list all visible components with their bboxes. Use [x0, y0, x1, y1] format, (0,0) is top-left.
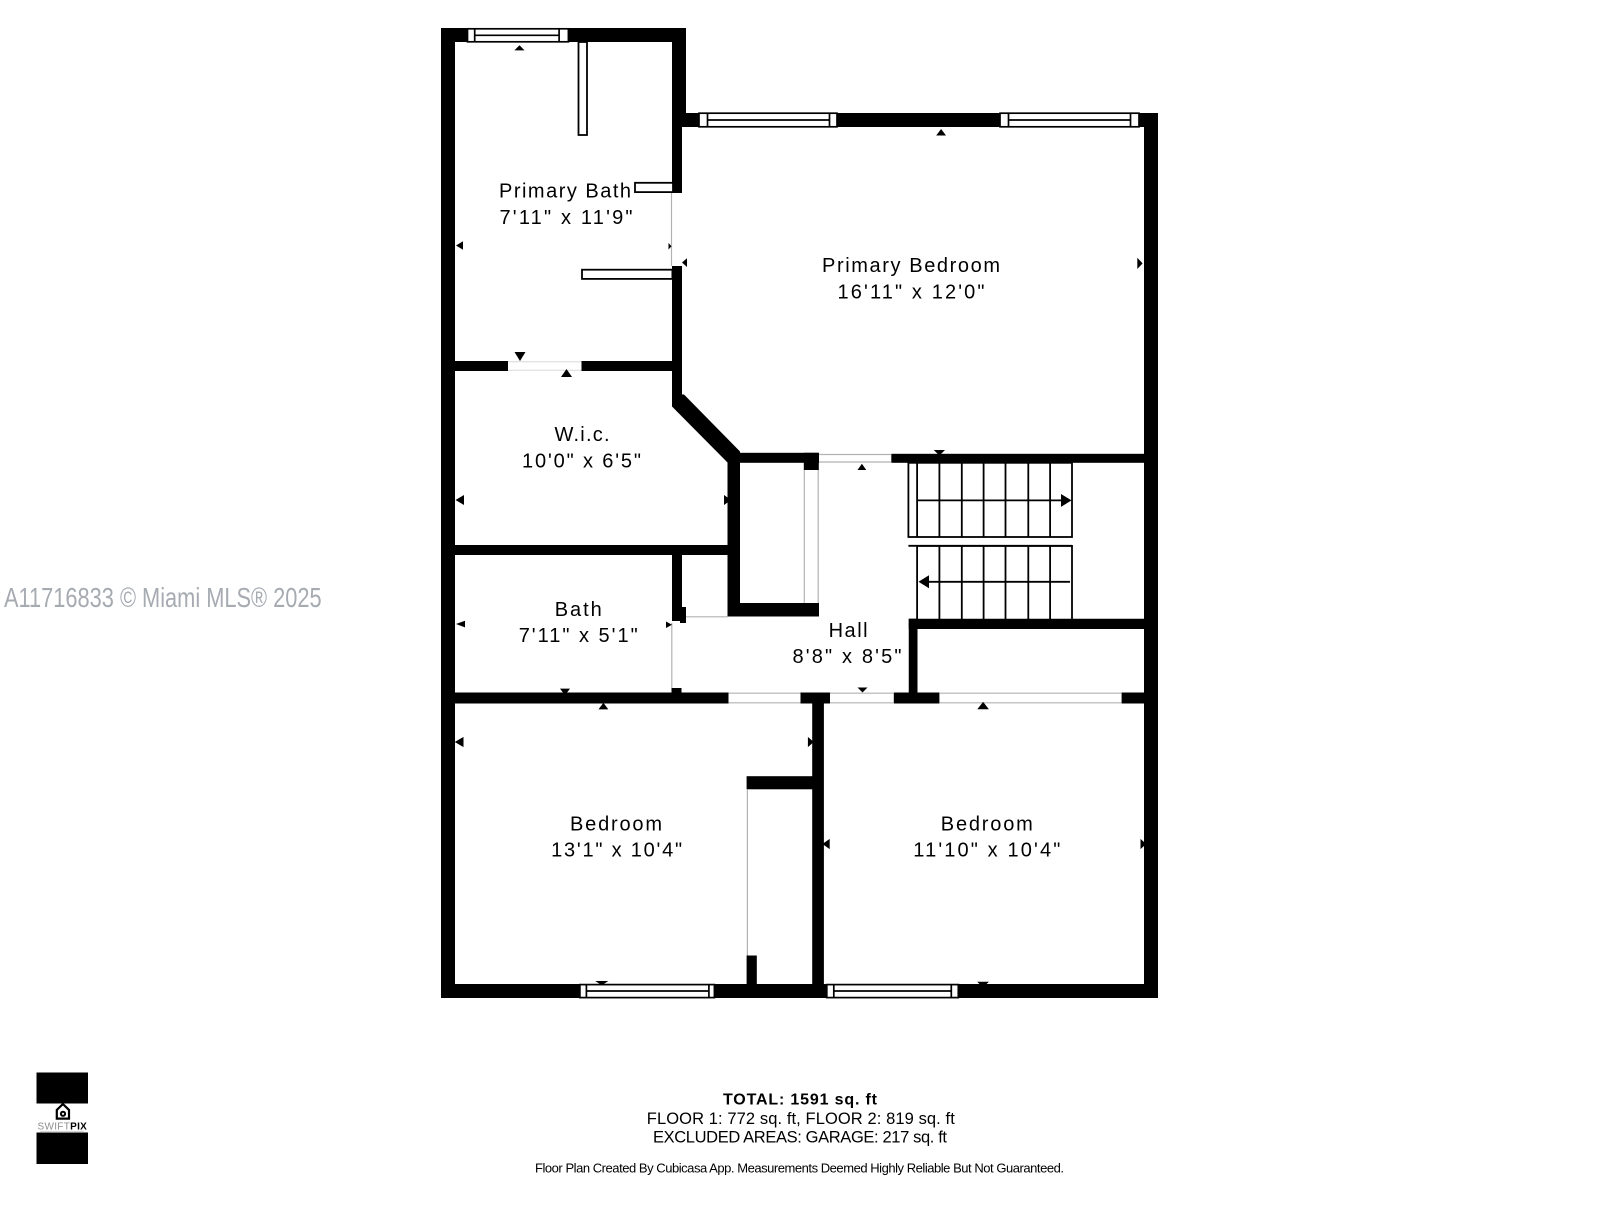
svg-text:W.i.c.: W.i.c. [555, 424, 610, 446]
svg-text:A11716833 © Miami MLS® 2025: A11716833 © Miami MLS® 2025 [4, 582, 322, 613]
svg-text:EXCLUDED AREAS: GARAGE: 217 sq: EXCLUDED AREAS: GARAGE: 217 sq. ft [653, 1129, 947, 1147]
svg-text:Primary Bath: Primary Bath [499, 181, 631, 203]
svg-text:7'11" x 11'9": 7'11" x 11'9" [500, 207, 633, 229]
svg-text:Floor Plan Created By Cubicasa: Floor Plan Created By Cubicasa App. Meas… [535, 1160, 1064, 1175]
svg-text:Bath: Bath [555, 599, 602, 621]
svg-text:13'1" x 10'4": 13'1" x 10'4" [551, 840, 682, 862]
svg-text:SWIFTPIX: SWIFTPIX [38, 1121, 88, 1132]
svg-text:TOTAL: 1591 sq. ft: TOTAL: 1591 sq. ft [723, 1091, 878, 1108]
svg-text:8'8" x 8'5": 8'8" x 8'5" [793, 646, 902, 668]
svg-text:Primary Bedroom: Primary Bedroom [822, 255, 1000, 277]
svg-text:FLOOR 1: 772 sq. ft, FLOOR 2:: FLOOR 1: 772 sq. ft, FLOOR 2: 819 sq. ft [647, 1110, 955, 1128]
